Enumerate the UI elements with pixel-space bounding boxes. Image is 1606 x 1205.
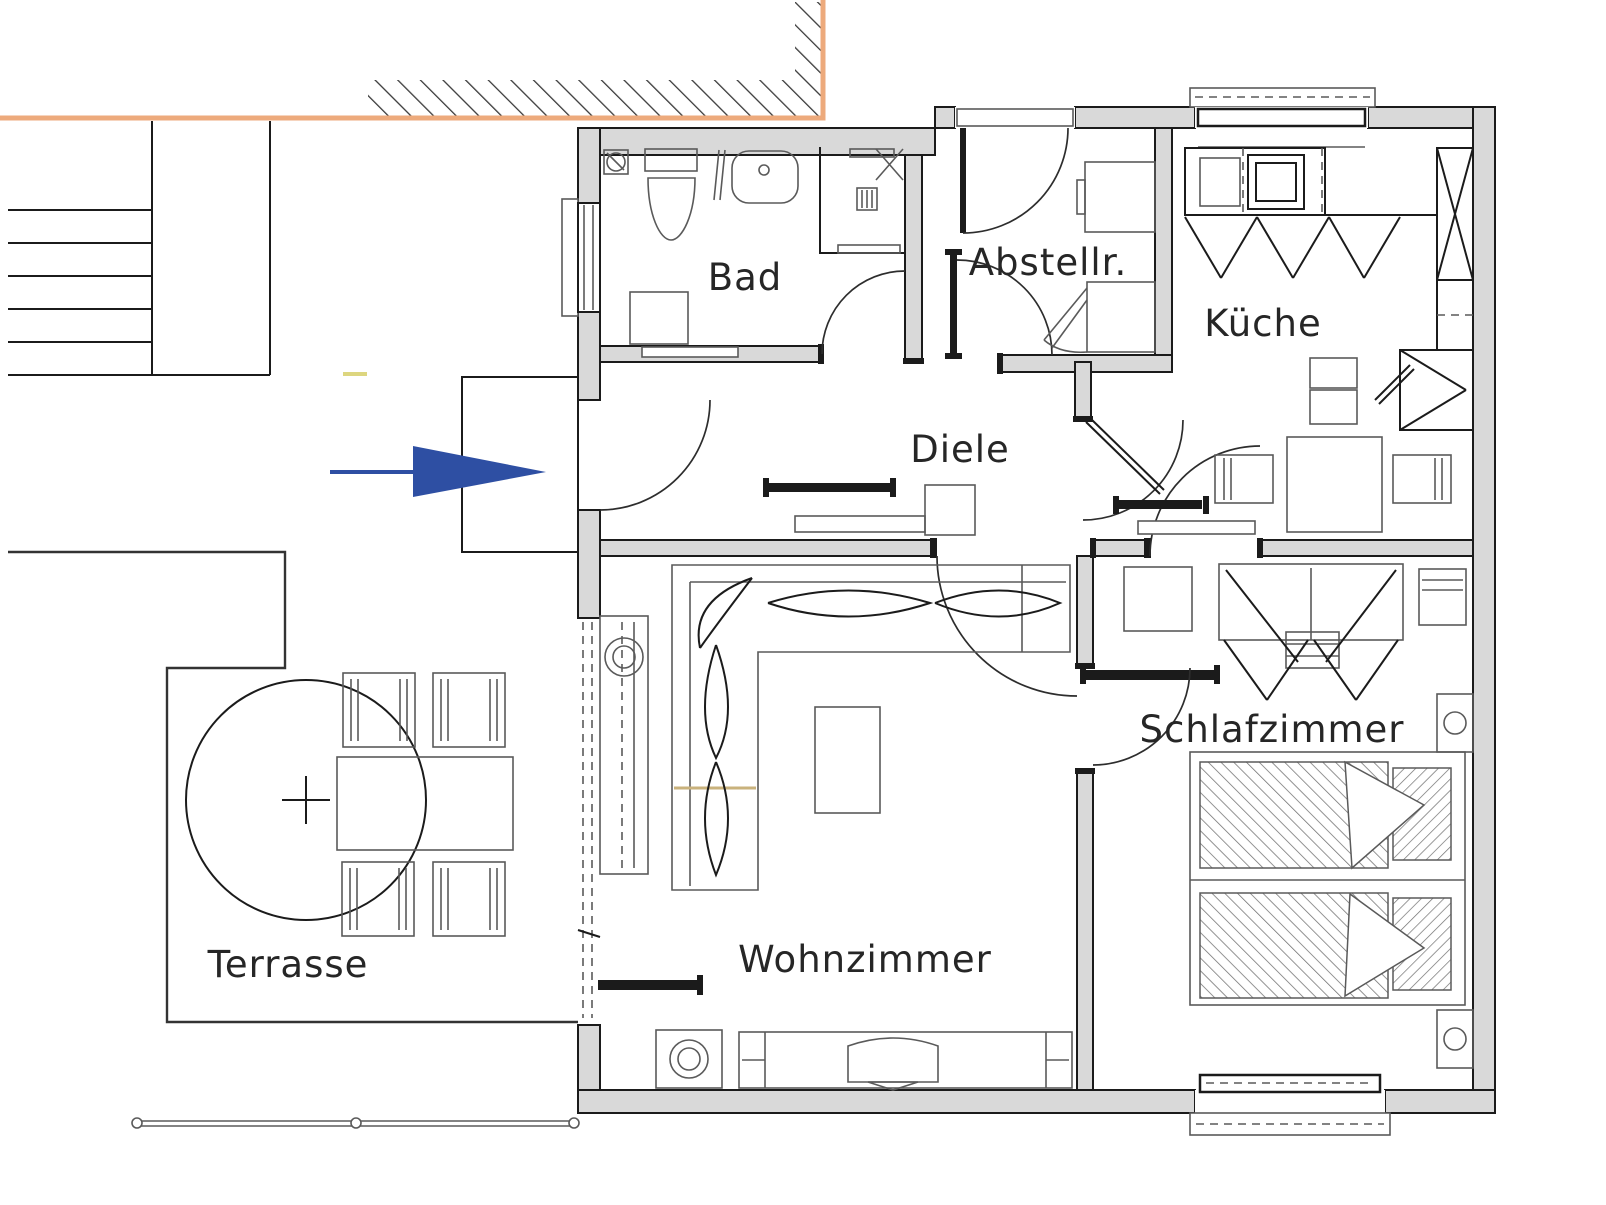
floor-plan-drawing: Bad Abstellr. Küche Diele Wohnzimmer Sch… (0, 0, 1606, 1205)
room-label-kueche: Küche (1204, 302, 1321, 345)
washer (630, 292, 688, 344)
nightstand-bottom (1437, 1010, 1473, 1068)
kitchen-chair-left (1215, 455, 1273, 503)
room-label-wohnzimmer: Wohnzimmer (738, 938, 992, 981)
terrace-furniture (186, 673, 513, 936)
parasol-cross (282, 776, 330, 824)
wohnzimmer-furniture (656, 565, 1072, 1090)
diele-sideboard (795, 516, 925, 532)
entrance-door (600, 400, 710, 510)
stairs (8, 121, 270, 375)
wohnzimmer-door (937, 556, 1077, 696)
bad-door (822, 271, 905, 354)
hatched-wall-band-vertical (795, 2, 823, 80)
entry-opening-top (955, 107, 1075, 128)
diele-cabinet (925, 485, 975, 535)
kitchen-cart (1310, 358, 1357, 424)
room-label-terrasse: Terrasse (207, 943, 369, 986)
room-label-abstellraum: Abstellr. (969, 241, 1127, 284)
room-label-diele: Diele (910, 428, 1010, 471)
nightstand-top (1437, 694, 1473, 752)
bath-shelf (642, 347, 738, 357)
bad-window (562, 199, 600, 316)
shower (820, 147, 904, 253)
wardrobe (1219, 564, 1403, 700)
wohnzimmer-window (578, 618, 600, 1025)
fridge (1400, 350, 1473, 430)
cabinet-door-marks (1185, 217, 1400, 278)
room-label-bad: Bad (708, 256, 783, 299)
hatched-wall-band-horizontal (368, 80, 823, 118)
entrance-arrow-icon (330, 446, 546, 497)
coffee-table (815, 707, 880, 813)
dresser (1124, 567, 1192, 631)
terrace-sliding-door (598, 975, 703, 995)
tv (848, 1038, 938, 1082)
stairwell-entry-door (960, 128, 1068, 233)
appliance-top (1077, 162, 1155, 232)
towel-rail (714, 150, 725, 200)
toilet (645, 149, 697, 240)
kitchen-sink (1200, 158, 1240, 206)
kitchen-table (1287, 437, 1382, 532)
kitchen-chair-right (1393, 455, 1451, 503)
stove (1248, 155, 1304, 209)
radiator (600, 616, 648, 874)
site-context (0, 0, 823, 1128)
open-cabinet-door (1375, 365, 1414, 404)
double-bed (1190, 752, 1465, 1005)
terrace-chairs (342, 673, 505, 936)
schlafzimmer-furniture (1124, 564, 1473, 1068)
tall-unit-2 (1437, 280, 1473, 350)
tv-lowboard (739, 1032, 1072, 1090)
floor-plan-page: Bad Abstellr. Küche Diele Wohnzimmer Sch… (0, 0, 1606, 1205)
room-label-schlafzimmer: Schlafzimmer (1139, 708, 1404, 751)
tall-corner-unit (1437, 148, 1473, 280)
bad-fixtures (604, 147, 904, 357)
diele-sideboard-2 (1138, 521, 1255, 534)
sink (732, 151, 798, 203)
schlafzimmer-window (1190, 1075, 1390, 1135)
appliance-bottom (1044, 282, 1155, 352)
corner-sofa (672, 565, 1070, 890)
sliding-door-diele (763, 478, 896, 497)
chest (1419, 569, 1466, 625)
kueche-window (1190, 88, 1375, 147)
subwoofer (656, 1030, 722, 1088)
fence (132, 1118, 579, 1128)
